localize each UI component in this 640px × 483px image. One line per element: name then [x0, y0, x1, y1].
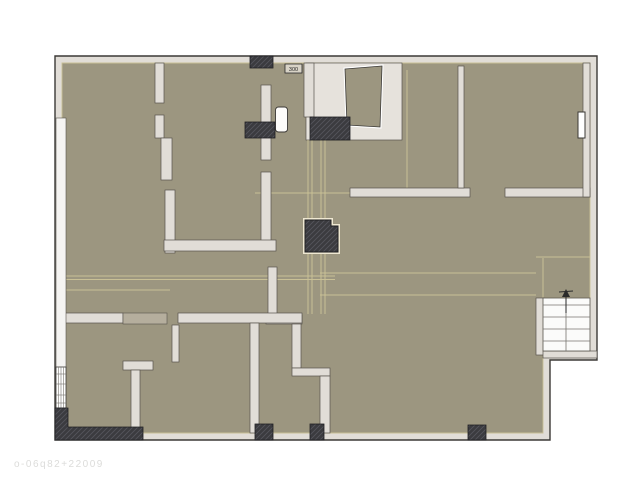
wall-segment — [131, 370, 140, 433]
wall-segment — [62, 313, 123, 323]
wall-segment — [155, 115, 164, 138]
floor-plan-svg: 300 — [0, 0, 640, 483]
threshold-block — [123, 313, 167, 324]
trapezoid-room — [345, 66, 382, 127]
wall-segment — [458, 66, 464, 188]
wall-cavity — [56, 118, 66, 368]
page: 300 o-06q82+22009 — [0, 0, 640, 483]
dark-block — [245, 122, 275, 138]
wall-segment — [350, 188, 470, 197]
dark-block — [468, 425, 486, 440]
wall-segment — [505, 188, 590, 197]
wall-segment — [172, 325, 179, 362]
floor-plan: 300 — [55, 56, 597, 440]
dark-block — [255, 424, 273, 440]
wall-segment — [161, 138, 172, 180]
wall-segment — [543, 351, 597, 358]
dark-block — [310, 424, 324, 440]
label-box-text: 300 — [289, 67, 298, 73]
window — [578, 112, 585, 138]
wall-segment — [292, 368, 330, 376]
watermark-text: o-06q82+22009 — [14, 459, 104, 470]
dark-block — [250, 56, 273, 68]
dark-block — [310, 117, 350, 140]
wall-segment — [178, 313, 302, 323]
wall-segment — [304, 63, 314, 117]
wall-segment — [250, 323, 259, 433]
wall-segment — [164, 240, 276, 251]
wall-segment — [268, 267, 277, 318]
wall-segment — [123, 361, 153, 370]
wall-segment — [292, 324, 301, 368]
wall-segment — [261, 172, 271, 242]
door-leaf — [276, 107, 288, 132]
wall-segment — [155, 63, 164, 103]
